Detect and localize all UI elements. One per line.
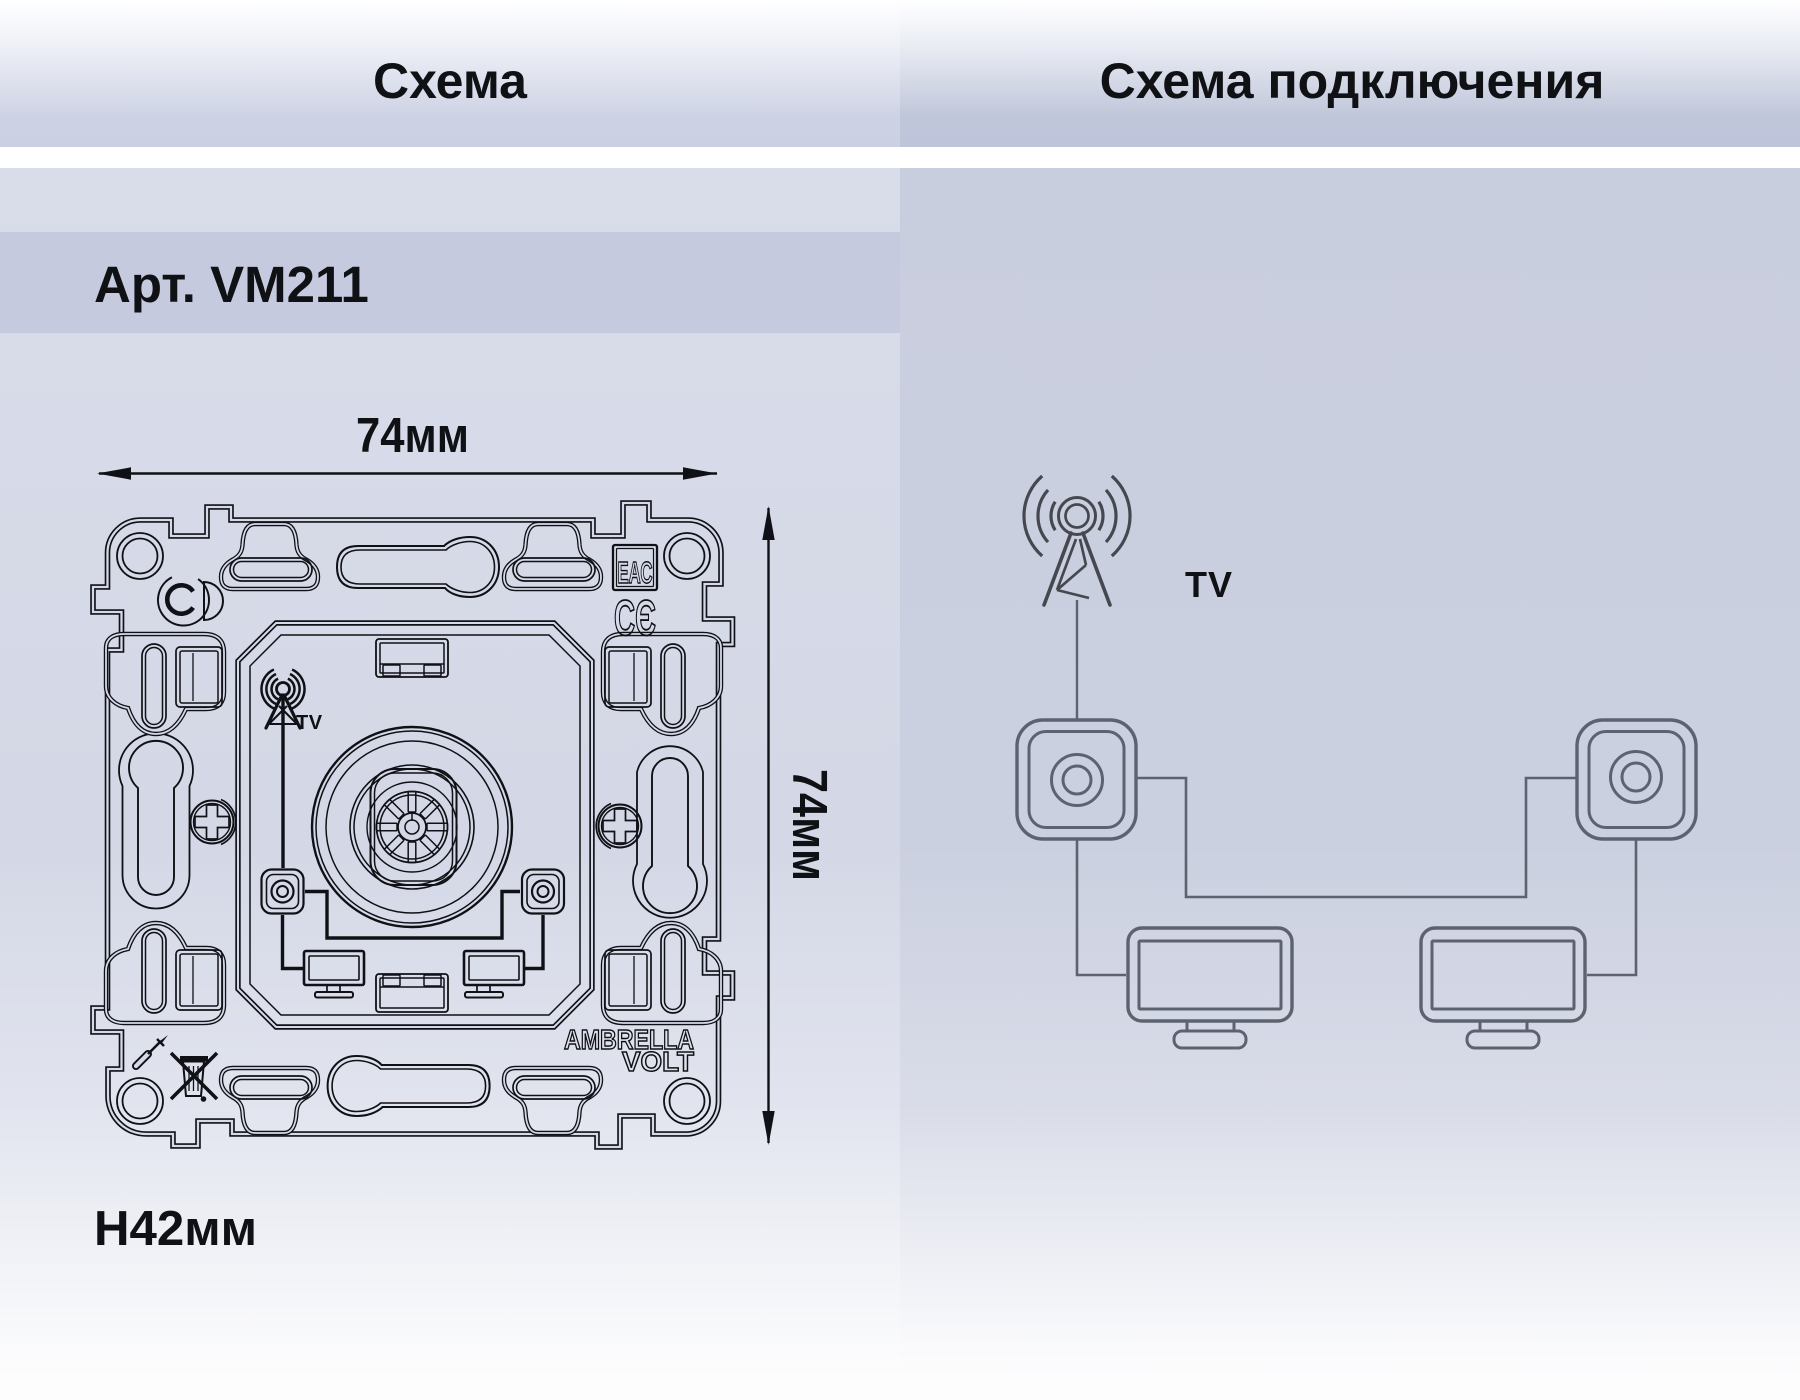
svg-text:CЄ: CЄ <box>614 590 656 646</box>
svg-text:TV: TV <box>296 712 323 734</box>
svg-text:Арт. VM211: Арт. VM211 <box>94 256 369 313</box>
svg-text:Н42мм: Н42мм <box>94 1202 257 1256</box>
svg-text:ЕАС: ЕАС <box>618 555 653 590</box>
svg-text:74мм: 74мм <box>782 769 836 881</box>
svg-text:TV: TV <box>1185 564 1233 605</box>
svg-text:VOLT: VOLT <box>622 1046 694 1077</box>
svg-text:74мм: 74мм <box>356 409 469 463</box>
svg-text:Схема: Схема <box>373 53 528 109</box>
svg-text:Схема подключения: Схема подключения <box>1100 53 1605 109</box>
